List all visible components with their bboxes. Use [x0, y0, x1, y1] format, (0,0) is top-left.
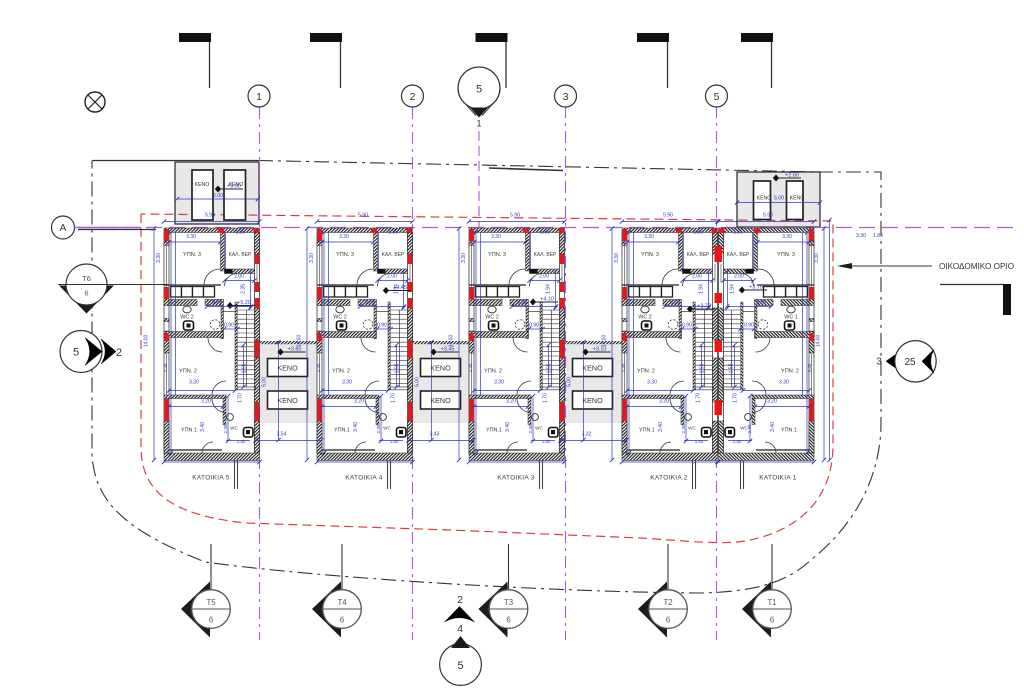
svg-text:ΚΑΛ. ΒΕΡ: ΚΑΛ. ΒΕΡ [534, 252, 557, 258]
svg-text:14.00: 14.00 [144, 335, 150, 348]
svg-text:3.30: 3.30 [316, 363, 321, 372]
svg-text:2: 2 [410, 91, 416, 103]
svg-text:+3.00: +3.00 [227, 184, 241, 190]
svg-text:6: 6 [209, 616, 213, 625]
svg-text:3: 3 [563, 91, 569, 103]
svg-text:0.85: 0.85 [365, 300, 375, 306]
svg-text:3.30: 3.30 [494, 380, 504, 386]
svg-text:ΚΑΛ. ΒΕΡ: ΚΑΛ. ΒΕΡ [229, 252, 252, 258]
svg-text:3.30: 3.30 [189, 380, 199, 386]
svg-text:T4: T4 [337, 598, 347, 607]
svg-text:+2.60: +2.60 [785, 173, 799, 179]
svg-text:KENO: KENO [430, 396, 451, 405]
svg-text:3.20: 3.20 [354, 399, 364, 405]
svg-text:+3.75: +3.75 [749, 285, 763, 291]
svg-text:ΥΠΝ. 2: ΥΠΝ. 2 [179, 369, 197, 375]
svg-text:3.30: 3.30 [491, 234, 501, 240]
svg-text:5.00: 5.00 [567, 377, 573, 387]
svg-text:1.50: 1.50 [390, 439, 399, 444]
svg-text:ΥΠΝ. 2: ΥΠΝ. 2 [781, 369, 799, 375]
svg-text:+5.20: +5.20 [237, 300, 251, 306]
svg-text:1.70: 1.70 [733, 393, 739, 403]
svg-text:5.90: 5.90 [358, 213, 368, 219]
svg-text:5.90: 5.90 [663, 213, 673, 219]
svg-text:5: 5 [457, 660, 463, 672]
svg-text:6: 6 [84, 289, 88, 298]
svg-text:1.85: 1.85 [733, 230, 743, 236]
svg-text:KENO: KENO [430, 364, 451, 373]
svg-text:25: 25 [904, 357, 916, 368]
svg-text:ΚΑΛ. ΒΕΡ: ΚΑΛ. ΒΕΡ [727, 252, 750, 258]
svg-text:5: 5 [476, 84, 482, 96]
svg-text:6: 6 [506, 616, 510, 625]
svg-text:ΚΑΤΟΙΚΙΑ 2: ΚΑΤΟΙΚΙΑ 2 [650, 475, 688, 482]
svg-text:WC 2: WC 2 [485, 315, 498, 321]
svg-text:1.70: 1.70 [543, 393, 549, 403]
svg-text:3.30: 3.30 [856, 233, 866, 239]
svg-text:ΥΠΝ. 2: ΥΠΝ. 2 [484, 369, 502, 375]
svg-text:1: 1 [256, 91, 262, 103]
svg-text:3.30: 3.30 [814, 253, 820, 263]
svg-text:1.94: 1.94 [699, 284, 705, 294]
svg-text:ΚΑΤΟΙΚΙΑ 4: ΚΑΤΟΙΚΙΑ 4 [345, 475, 383, 482]
svg-text:3.20: 3.20 [767, 399, 777, 405]
svg-text:ΚΑΤΟΙΚΙΑ 3: ΚΑΤΟΙΚΙΑ 3 [497, 475, 535, 482]
svg-text:KENO: KENO [195, 182, 210, 188]
svg-text:3.30: 3.30 [647, 380, 657, 386]
svg-text:KENO: KENO [582, 364, 603, 373]
svg-text:5: 5 [73, 347, 79, 359]
svg-text:1.70: 1.70 [238, 393, 244, 403]
svg-text:ΟΙΚΟΔΟΜΙΚΟ ΟΡΙΟ: ΟΙΚΟΔΟΜΙΚΟ ΟΡΙΟ [939, 262, 1014, 271]
svg-text:+4.45: +4.45 [393, 285, 407, 291]
svg-text:3.30: 3.30 [621, 363, 626, 372]
svg-text:KENO: KENO [790, 196, 805, 202]
svg-text:WC 1: WC 1 [784, 315, 797, 321]
svg-text:ΥΠΝ.1: ΥΠΝ.1 [486, 428, 502, 434]
svg-text:5.90: 5.90 [205, 213, 215, 219]
svg-text:1.70: 1.70 [391, 393, 397, 403]
svg-text:3.54: 3.54 [277, 432, 287, 438]
svg-text:T2: T2 [663, 598, 672, 607]
svg-text:ΥΠΝ. 3: ΥΠΝ. 3 [641, 252, 659, 258]
svg-text:2.00: 2.00 [234, 274, 244, 280]
svg-text:ΥΠΝ.1: ΥΠΝ.1 [781, 428, 797, 434]
svg-text:3.20: 3.20 [506, 399, 516, 405]
svg-text:ΚΑΤΟΙΚΙΑ 1: ΚΑΤΟΙΚΙΑ 1 [759, 475, 797, 482]
svg-text:3.30: 3.30 [163, 363, 168, 372]
svg-text:0.85: 0.85 [212, 300, 222, 306]
svg-text:3.40: 3.40 [658, 422, 664, 432]
svg-text:3.30: 3.30 [779, 380, 789, 386]
svg-text:2.00: 2.00 [692, 274, 702, 280]
svg-text:5.00: 5.00 [262, 377, 268, 387]
svg-text:14.00: 14.00 [602, 335, 608, 348]
svg-text:ΚΑΛ. ΒΕΡ: ΚΑΛ. ΒΕΡ [382, 252, 405, 258]
svg-text:2.30: 2.30 [223, 424, 228, 433]
svg-text:3.30: 3.30 [186, 234, 196, 240]
svg-text:1.85: 1.85 [540, 230, 550, 236]
svg-text:WC 2: WC 2 [333, 315, 346, 321]
svg-text:2.30: 2.30 [681, 424, 686, 433]
svg-text:0.85: 0.85 [517, 300, 527, 306]
svg-text:1.55: 1.55 [242, 363, 248, 373]
svg-text:3.30: 3.30 [339, 234, 349, 240]
svg-text:1.50: 1.50 [695, 439, 704, 444]
svg-text:3.30: 3.30 [782, 234, 792, 240]
svg-text:4: 4 [457, 623, 463, 635]
svg-text:14.00: 14.00 [449, 335, 455, 348]
svg-text:1.85: 1.85 [388, 230, 398, 236]
svg-text:3.30: 3.30 [468, 363, 473, 372]
svg-text:1.55: 1.55 [729, 363, 735, 373]
svg-text:1.50: 1.50 [542, 439, 551, 444]
svg-text:1.55: 1.55 [547, 363, 553, 373]
svg-text:ΚΑΛ. ΒΕΡ: ΚΑΛ. ΒΕΡ [687, 252, 710, 258]
svg-text:3.30: 3.30 [309, 253, 315, 263]
svg-text:14.00: 14.00 [297, 335, 303, 348]
svg-text:1.55: 1.55 [700, 363, 706, 373]
svg-text:1.85: 1.85 [873, 233, 883, 239]
svg-text:3.40: 3.40 [200, 422, 206, 432]
svg-text:3.20: 3.20 [659, 399, 669, 405]
svg-text:6: 6 [770, 616, 774, 625]
svg-text:0.90: 0.90 [744, 323, 754, 329]
svg-text:3.30: 3.30 [342, 380, 352, 386]
svg-text:KENO: KENO [277, 364, 298, 373]
svg-text:3.30: 3.30 [807, 363, 812, 372]
svg-text:0.85: 0.85 [756, 300, 766, 306]
svg-text:ΥΠΝ. 2: ΥΠΝ. 2 [637, 369, 655, 375]
svg-text:WC 2: WC 2 [638, 315, 651, 321]
svg-text:0.85: 0.85 [670, 300, 680, 306]
svg-text:2.00: 2.00 [539, 274, 549, 280]
svg-text:1.50: 1.50 [733, 439, 742, 444]
svg-text:KENO: KENO [582, 396, 603, 405]
svg-text:ΥΠΝ. 3: ΥΠΝ. 3 [183, 252, 201, 258]
svg-text:2.35: 2.35 [241, 284, 247, 294]
svg-text:3.30: 3.30 [461, 253, 467, 263]
svg-text:5.90: 5.90 [510, 213, 520, 219]
svg-text:ΚΑΤΟΙΚΙΑ 5: ΚΑΤΟΙΚΙΑ 5 [192, 475, 230, 482]
svg-text:3.40: 3.40 [353, 422, 359, 432]
svg-text:3.30: 3.30 [156, 253, 162, 263]
svg-text:3.30: 3.30 [614, 253, 620, 263]
svg-text:WC: WC [688, 426, 696, 431]
svg-text:T5: T5 [206, 598, 216, 607]
svg-text:WC: WC [383, 426, 391, 431]
svg-text:3.30: 3.30 [644, 234, 654, 240]
svg-text:T3: T3 [504, 598, 513, 607]
svg-text:6: 6 [340, 616, 344, 625]
svg-text:1.55: 1.55 [395, 363, 401, 373]
svg-text:ΥΠΝ. 3: ΥΠΝ. 3 [336, 252, 354, 258]
svg-text:5.90: 5.90 [763, 213, 773, 219]
svg-text:ΥΠΝ. 3: ΥΠΝ. 3 [488, 252, 506, 258]
svg-text:2.30: 2.30 [528, 424, 533, 433]
svg-text:6: 6 [666, 616, 670, 625]
svg-text:3.43: 3.43 [430, 432, 440, 438]
svg-text:5.00: 5.00 [415, 377, 421, 387]
svg-text:3: 3 [876, 357, 882, 368]
svg-text:T1: T1 [767, 598, 776, 607]
svg-text:1.94: 1.94 [546, 284, 552, 294]
svg-text:WC: WC [230, 426, 238, 431]
svg-text:5: 5 [714, 91, 720, 103]
svg-text:2.30: 2.30 [747, 424, 752, 433]
svg-text:3.40: 3.40 [770, 422, 776, 432]
svg-text:1.94: 1.94 [730, 284, 736, 294]
svg-text:ΥΠΝ. 3: ΥΠΝ. 3 [777, 252, 795, 258]
svg-text:+4.10: +4.10 [540, 297, 554, 303]
svg-text:KENO: KENO [277, 396, 298, 405]
svg-text:2.00: 2.00 [387, 274, 397, 280]
svg-text:ΥΠΝ.1: ΥΠΝ.1 [639, 428, 655, 434]
svg-text:14.00: 14.00 [816, 335, 822, 348]
svg-text:T6: T6 [82, 274, 91, 283]
svg-text:1.50: 1.50 [237, 439, 246, 444]
svg-text:3.32: 3.32 [582, 432, 592, 438]
svg-text:3.20: 3.20 [201, 399, 211, 405]
svg-text:2: 2 [457, 594, 463, 606]
svg-text:1.70: 1.70 [696, 393, 702, 403]
svg-text:ΥΠΝ.1: ΥΠΝ.1 [334, 428, 350, 434]
svg-text:1.85: 1.85 [693, 230, 703, 236]
svg-text:5.00: 5.00 [213, 193, 223, 199]
svg-text:1.85: 1.85 [235, 230, 245, 236]
svg-text:3.40: 3.40 [505, 422, 511, 432]
svg-text:KENO: KENO [757, 196, 772, 202]
svg-text:A: A [60, 223, 67, 234]
svg-text:2: 2 [116, 347, 122, 359]
svg-text:ΥΠΝ. 2: ΥΠΝ. 2 [332, 369, 350, 375]
svg-text:WC: WC [535, 426, 543, 431]
svg-text:ΥΠΝ.1: ΥΠΝ.1 [181, 428, 197, 434]
svg-text:1: 1 [476, 119, 481, 129]
svg-text:2.30: 2.30 [376, 424, 381, 433]
svg-text:5.00: 5.00 [774, 196, 784, 202]
svg-text:2.00: 2.00 [734, 274, 744, 280]
svg-text:WC 2: WC 2 [180, 315, 193, 321]
